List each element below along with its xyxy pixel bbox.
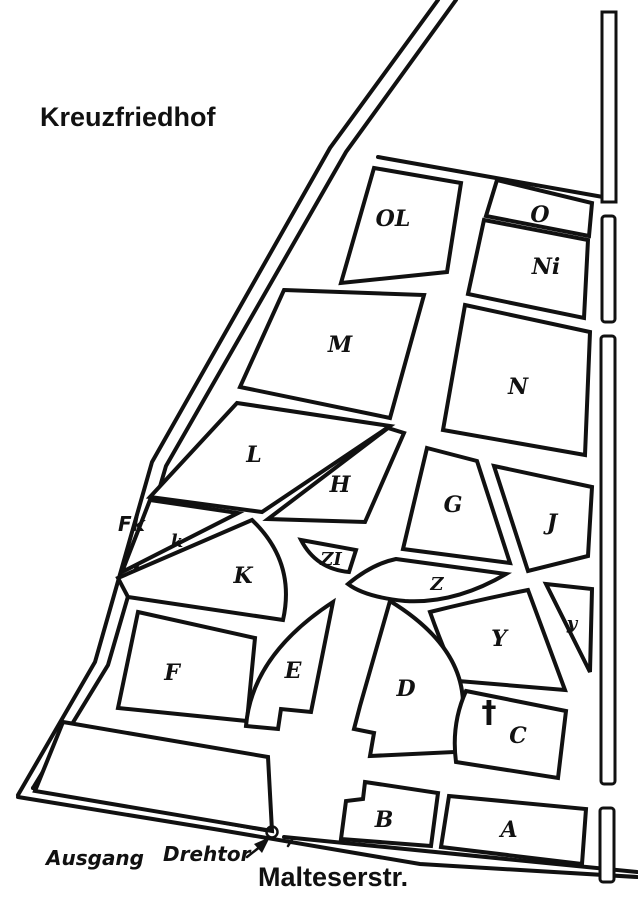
section-f-shape [118, 612, 255, 721]
section-label-f: F [163, 660, 181, 686]
section-label-o: O [530, 202, 549, 228]
section-label-k: K [232, 563, 253, 589]
east-wall-segment-4 [600, 808, 614, 882]
section-label-h: H [329, 472, 352, 498]
section-label-y-small: y [566, 613, 579, 634]
section-label-z: Z [429, 574, 444, 595]
exit-label: Ausgang [44, 846, 144, 870]
section-label-a: A [498, 817, 517, 843]
section-label-y: Y [491, 626, 509, 652]
section-label-d: D [395, 676, 415, 702]
section-label-n: N [507, 374, 529, 400]
section-label-k-small: k [171, 531, 183, 552]
section-label-m: M [327, 332, 353, 358]
east-wall-segment-2 [602, 216, 615, 322]
grave-cross-icon: † [482, 695, 497, 730]
section-label-c: C [509, 723, 527, 749]
cemetery-map: Kreuzfriedhof Malteserstr. Ausgang Dreht… [0, 0, 638, 900]
section-z-shape [348, 559, 506, 601]
section-label-ni: Ni [531, 254, 560, 280]
map-title: Kreuzfriedhof [40, 102, 217, 132]
east-wall-hatched-segment [602, 12, 616, 202]
south-west-strip-shape [35, 722, 272, 831]
east-wall-segment-3 [601, 336, 615, 784]
section-label-l: L [245, 442, 261, 468]
section-label-ol: OL [376, 206, 411, 232]
section-label-g: G [444, 492, 463, 518]
map-drawing: Kreuzfriedhof Malteserstr. Ausgang Dreht… [0, 0, 638, 900]
section-label-e: E [284, 658, 303, 684]
chapel-label: Fk [118, 512, 147, 536]
street-label: Malteserstr. [258, 862, 408, 892]
section-label-b: B [374, 807, 394, 833]
gate-label: Drehtor [163, 842, 252, 866]
section-label-zi: ZI [319, 549, 342, 570]
section-ni-shape [468, 220, 588, 318]
